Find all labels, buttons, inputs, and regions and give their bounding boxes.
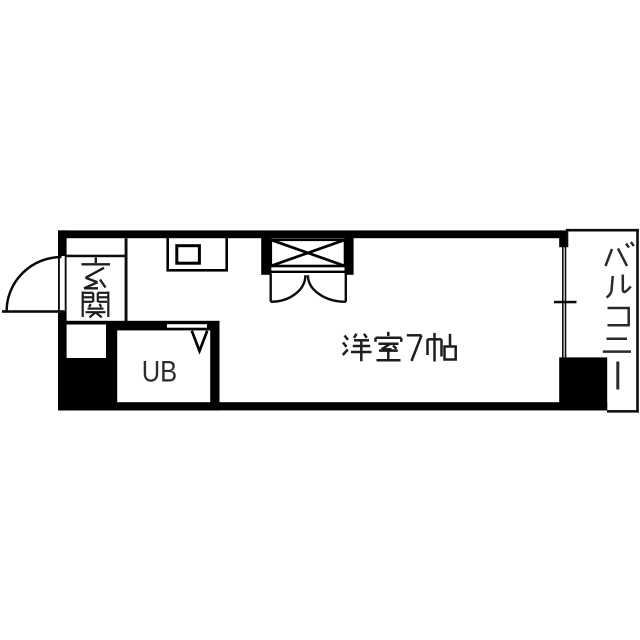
svg-text:UB: UB [142, 355, 177, 388]
